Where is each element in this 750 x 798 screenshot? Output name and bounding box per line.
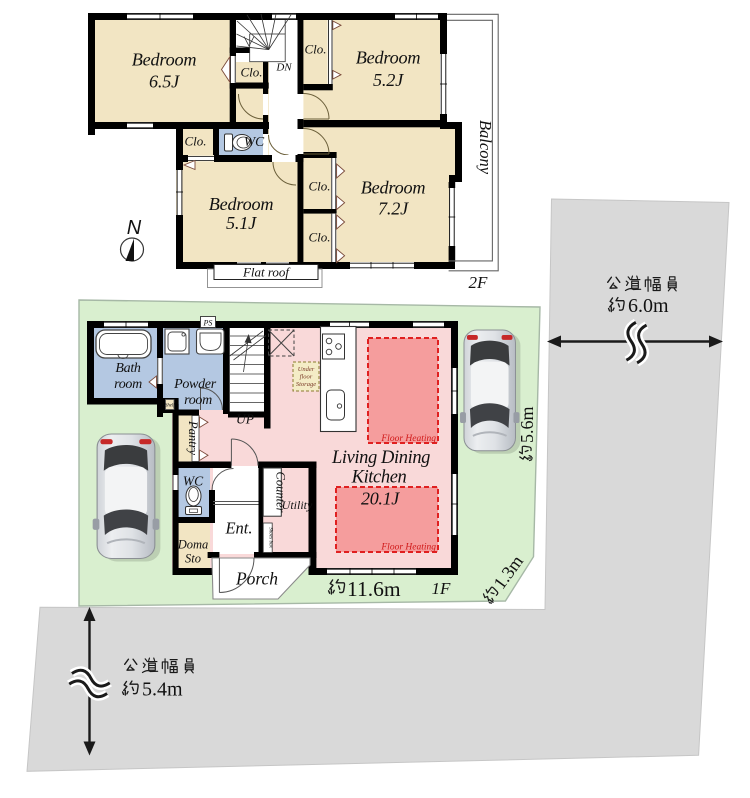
svg-text:Shelf: Shelf [165,404,175,409]
svg-text:Porch: Porch [235,569,278,589]
svg-text:Floor Heating: Floor Heating [380,543,436,553]
svg-text:Utility: Utility [282,498,313,512]
svg-text:Clo.: Clo. [308,230,330,245]
svg-text:Sto: Sto [185,552,201,566]
svg-text:6.0m: 6.0m [628,295,669,317]
svg-text:Powder: Powder [173,377,217,392]
svg-text:Bedroom: Bedroom [132,50,197,70]
svg-text:room: room [184,393,212,408]
svg-text:Shoes box: Shoes box [268,527,274,549]
svg-text:Kitchen: Kitchen [351,468,407,488]
svg-text:20.1J: 20.1J [361,489,400,509]
svg-text:DN: DN [275,62,292,74]
svg-text:2F: 2F [469,273,489,292]
svg-text:N: N [127,217,142,239]
svg-text:Clo.: Clo. [184,134,206,149]
svg-text:5.2J: 5.2J [373,70,404,90]
svg-text:7.2J: 7.2J [378,199,409,219]
svg-text:PS: PS [203,319,213,328]
svg-text:Living Dining: Living Dining [331,448,430,468]
svg-text:5.4m: 5.4m [142,679,183,701]
svg-text:Bedroom: Bedroom [209,194,274,214]
svg-text:6.5J: 6.5J [149,72,180,92]
svg-text:Floor Heating: Floor Heating [380,434,436,444]
svg-text:Pantry: Pantry [186,420,200,455]
svg-text:Ent.: Ent. [224,519,252,538]
svg-text:Clo.: Clo. [308,179,330,194]
svg-text:WC: WC [183,474,204,489]
svg-text:Bath: Bath [115,361,141,376]
svg-text:Doma: Doma [177,538,209,552]
svg-text:floor: floor [300,374,313,381]
svg-text:11.6m: 11.6m [347,577,401,601]
svg-text:Balcony: Balcony [476,120,495,175]
svg-text:1F: 1F [432,579,452,598]
svg-text:Bedroom: Bedroom [356,48,421,68]
svg-text:Clo.: Clo. [240,65,262,80]
svg-text:Flat roof: Flat roof [242,265,291,280]
svg-text:Under: Under [298,366,315,373]
svg-text:Bedroom: Bedroom [361,178,426,198]
svg-text:Storage: Storage [296,381,316,388]
svg-text:UP: UP [236,412,254,427]
svg-text:room: room [114,377,142,392]
svg-text:Clo.: Clo. [304,42,326,57]
svg-text:WC: WC [244,134,265,149]
svg-text:5.1J: 5.1J [226,213,257,233]
